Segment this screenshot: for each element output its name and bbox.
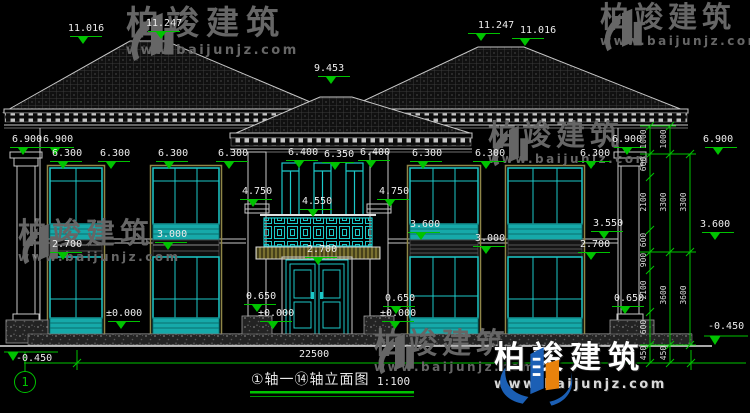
roof-left bbox=[4, 41, 334, 112]
porch-upper-windows bbox=[282, 163, 363, 215]
elev-label-roof-right-ridge: 11.247 bbox=[478, 21, 514, 31]
elev-label-porch-floor: 0.650 bbox=[246, 292, 276, 302]
dim-chain-label: 3600 bbox=[660, 280, 668, 310]
elev-label-porch-head: 6.350 bbox=[324, 150, 354, 160]
dim-chain-label: 3300 bbox=[680, 187, 688, 217]
elev-label-window-head: 6.300 bbox=[475, 149, 505, 159]
elev-label-window-head: 6.300 bbox=[158, 149, 188, 159]
window-stack-d bbox=[506, 166, 585, 335]
elev-label-eave: 6.900 bbox=[612, 135, 642, 145]
elev-label-roof-left-outer: 11.016 bbox=[68, 24, 104, 34]
elev-label-roof-right-outer: 11.016 bbox=[520, 26, 556, 36]
ground-band bbox=[28, 334, 692, 345]
elev-label-floor: 3.000 bbox=[475, 234, 505, 244]
elev-label-site: -0.450 bbox=[708, 322, 744, 332]
elev-label-window-head: 6.300 bbox=[100, 149, 130, 159]
dim-chain-label: 2100 bbox=[640, 187, 648, 217]
elev-label-ground: ±0.000 bbox=[258, 309, 294, 319]
elev-label-eave: 6.900 bbox=[703, 135, 733, 145]
elev-label-sill: 3.550 bbox=[593, 219, 623, 229]
window-stack-a bbox=[48, 166, 105, 335]
dim-chain-label: 900 bbox=[640, 245, 648, 275]
elev-label-balcony: 4.750 bbox=[242, 187, 272, 197]
dim-chain-label: 3600 bbox=[680, 280, 688, 310]
elevation-drawing bbox=[0, 0, 750, 413]
elev-label-sill: 3.600 bbox=[700, 220, 730, 230]
window-stack-b bbox=[151, 166, 222, 335]
elev-label-ground: ±0.000 bbox=[380, 309, 416, 319]
drawing-title: ①轴一⑭轴立面图 bbox=[251, 369, 370, 389]
dim-chain-label: 3300 bbox=[660, 187, 668, 217]
roof-right bbox=[340, 47, 688, 112]
elev-label-window-head: 6.300 bbox=[218, 149, 248, 159]
dim-chain-label: 600 bbox=[640, 149, 648, 179]
elev-label-roof-left-ridge: 11.247 bbox=[146, 19, 182, 29]
elev-label-balcony: 4.750 bbox=[379, 187, 409, 197]
dim-chain-label: 450 bbox=[660, 338, 668, 368]
elev-label-porch-head: 6.400 bbox=[360, 148, 390, 158]
elev-label-site: -0.450 bbox=[16, 354, 52, 364]
elev-label-balcony: 4.550 bbox=[302, 197, 332, 207]
elev-label-ground: ±0.000 bbox=[106, 309, 142, 319]
dim-total-width: 22500 bbox=[299, 350, 329, 360]
elev-label-eave: 6.900 bbox=[43, 135, 73, 145]
elev-label-sill: 3.600 bbox=[410, 220, 440, 230]
entry-door bbox=[282, 257, 352, 334]
corner-column-left bbox=[10, 152, 42, 322]
dim-chain-label: 450 bbox=[640, 338, 648, 368]
elev-label-window-head: 6.300 bbox=[412, 149, 442, 159]
drawing-scale: 1:100 bbox=[377, 375, 410, 388]
elev-label-porch-head: 6.400 bbox=[288, 148, 318, 158]
axis-bubble-1: 1 bbox=[14, 371, 36, 393]
elev-label-lintel: 2.700 bbox=[52, 240, 82, 250]
elev-label-window-head: 6.300 bbox=[580, 149, 610, 159]
dim-chain-label: 2100 bbox=[640, 275, 648, 305]
elev-label-floor: 3.000 bbox=[157, 230, 187, 240]
cad-elevation-screenshot: 柏竣建筑 www.baijunjz.com 柏竣建筑 www.baijunjz.… bbox=[0, 0, 750, 413]
balcony-railing bbox=[260, 215, 376, 246]
elev-label-window-head: 6.300 bbox=[52, 149, 82, 159]
elev-label-lintel: 2.700 bbox=[307, 245, 337, 255]
elev-label-roof-center: 9.453 bbox=[314, 64, 344, 74]
elev-label-eave: 6.900 bbox=[12, 135, 42, 145]
elev-label-porch-floor: 0.650 bbox=[385, 294, 415, 304]
elev-label-lintel: 2.700 bbox=[580, 240, 610, 250]
window-stack-c bbox=[408, 166, 481, 335]
dim-chain-label: 1000 bbox=[660, 124, 668, 154]
